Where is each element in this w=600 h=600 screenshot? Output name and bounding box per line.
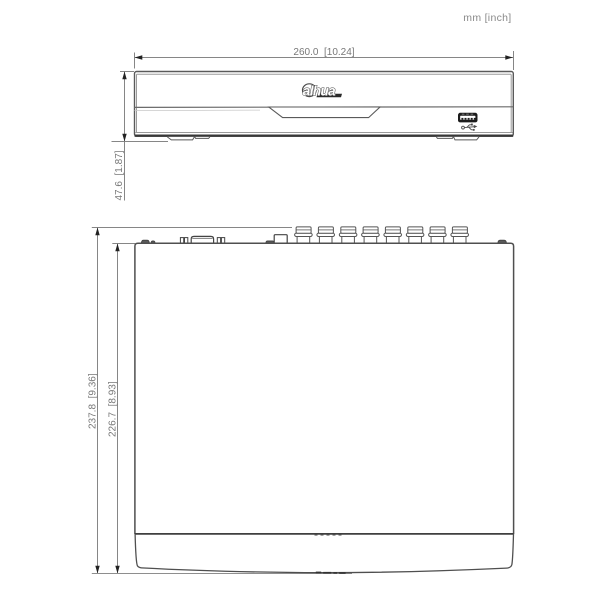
svg-text:mm [inch]: mm [inch]: [463, 12, 511, 24]
svg-text:226.7 [8.93]: 226.7 [8.93]: [108, 381, 119, 437]
svg-text:47.6 [1.87]: 47.6 [1.87]: [114, 150, 125, 200]
svg-text:260.0 [10.24]: 260.0 [10.24]: [293, 47, 354, 58]
svg-text:alhua: alhua: [303, 84, 336, 99]
svg-text:237.8 [9.36]: 237.8 [9.36]: [87, 373, 98, 429]
